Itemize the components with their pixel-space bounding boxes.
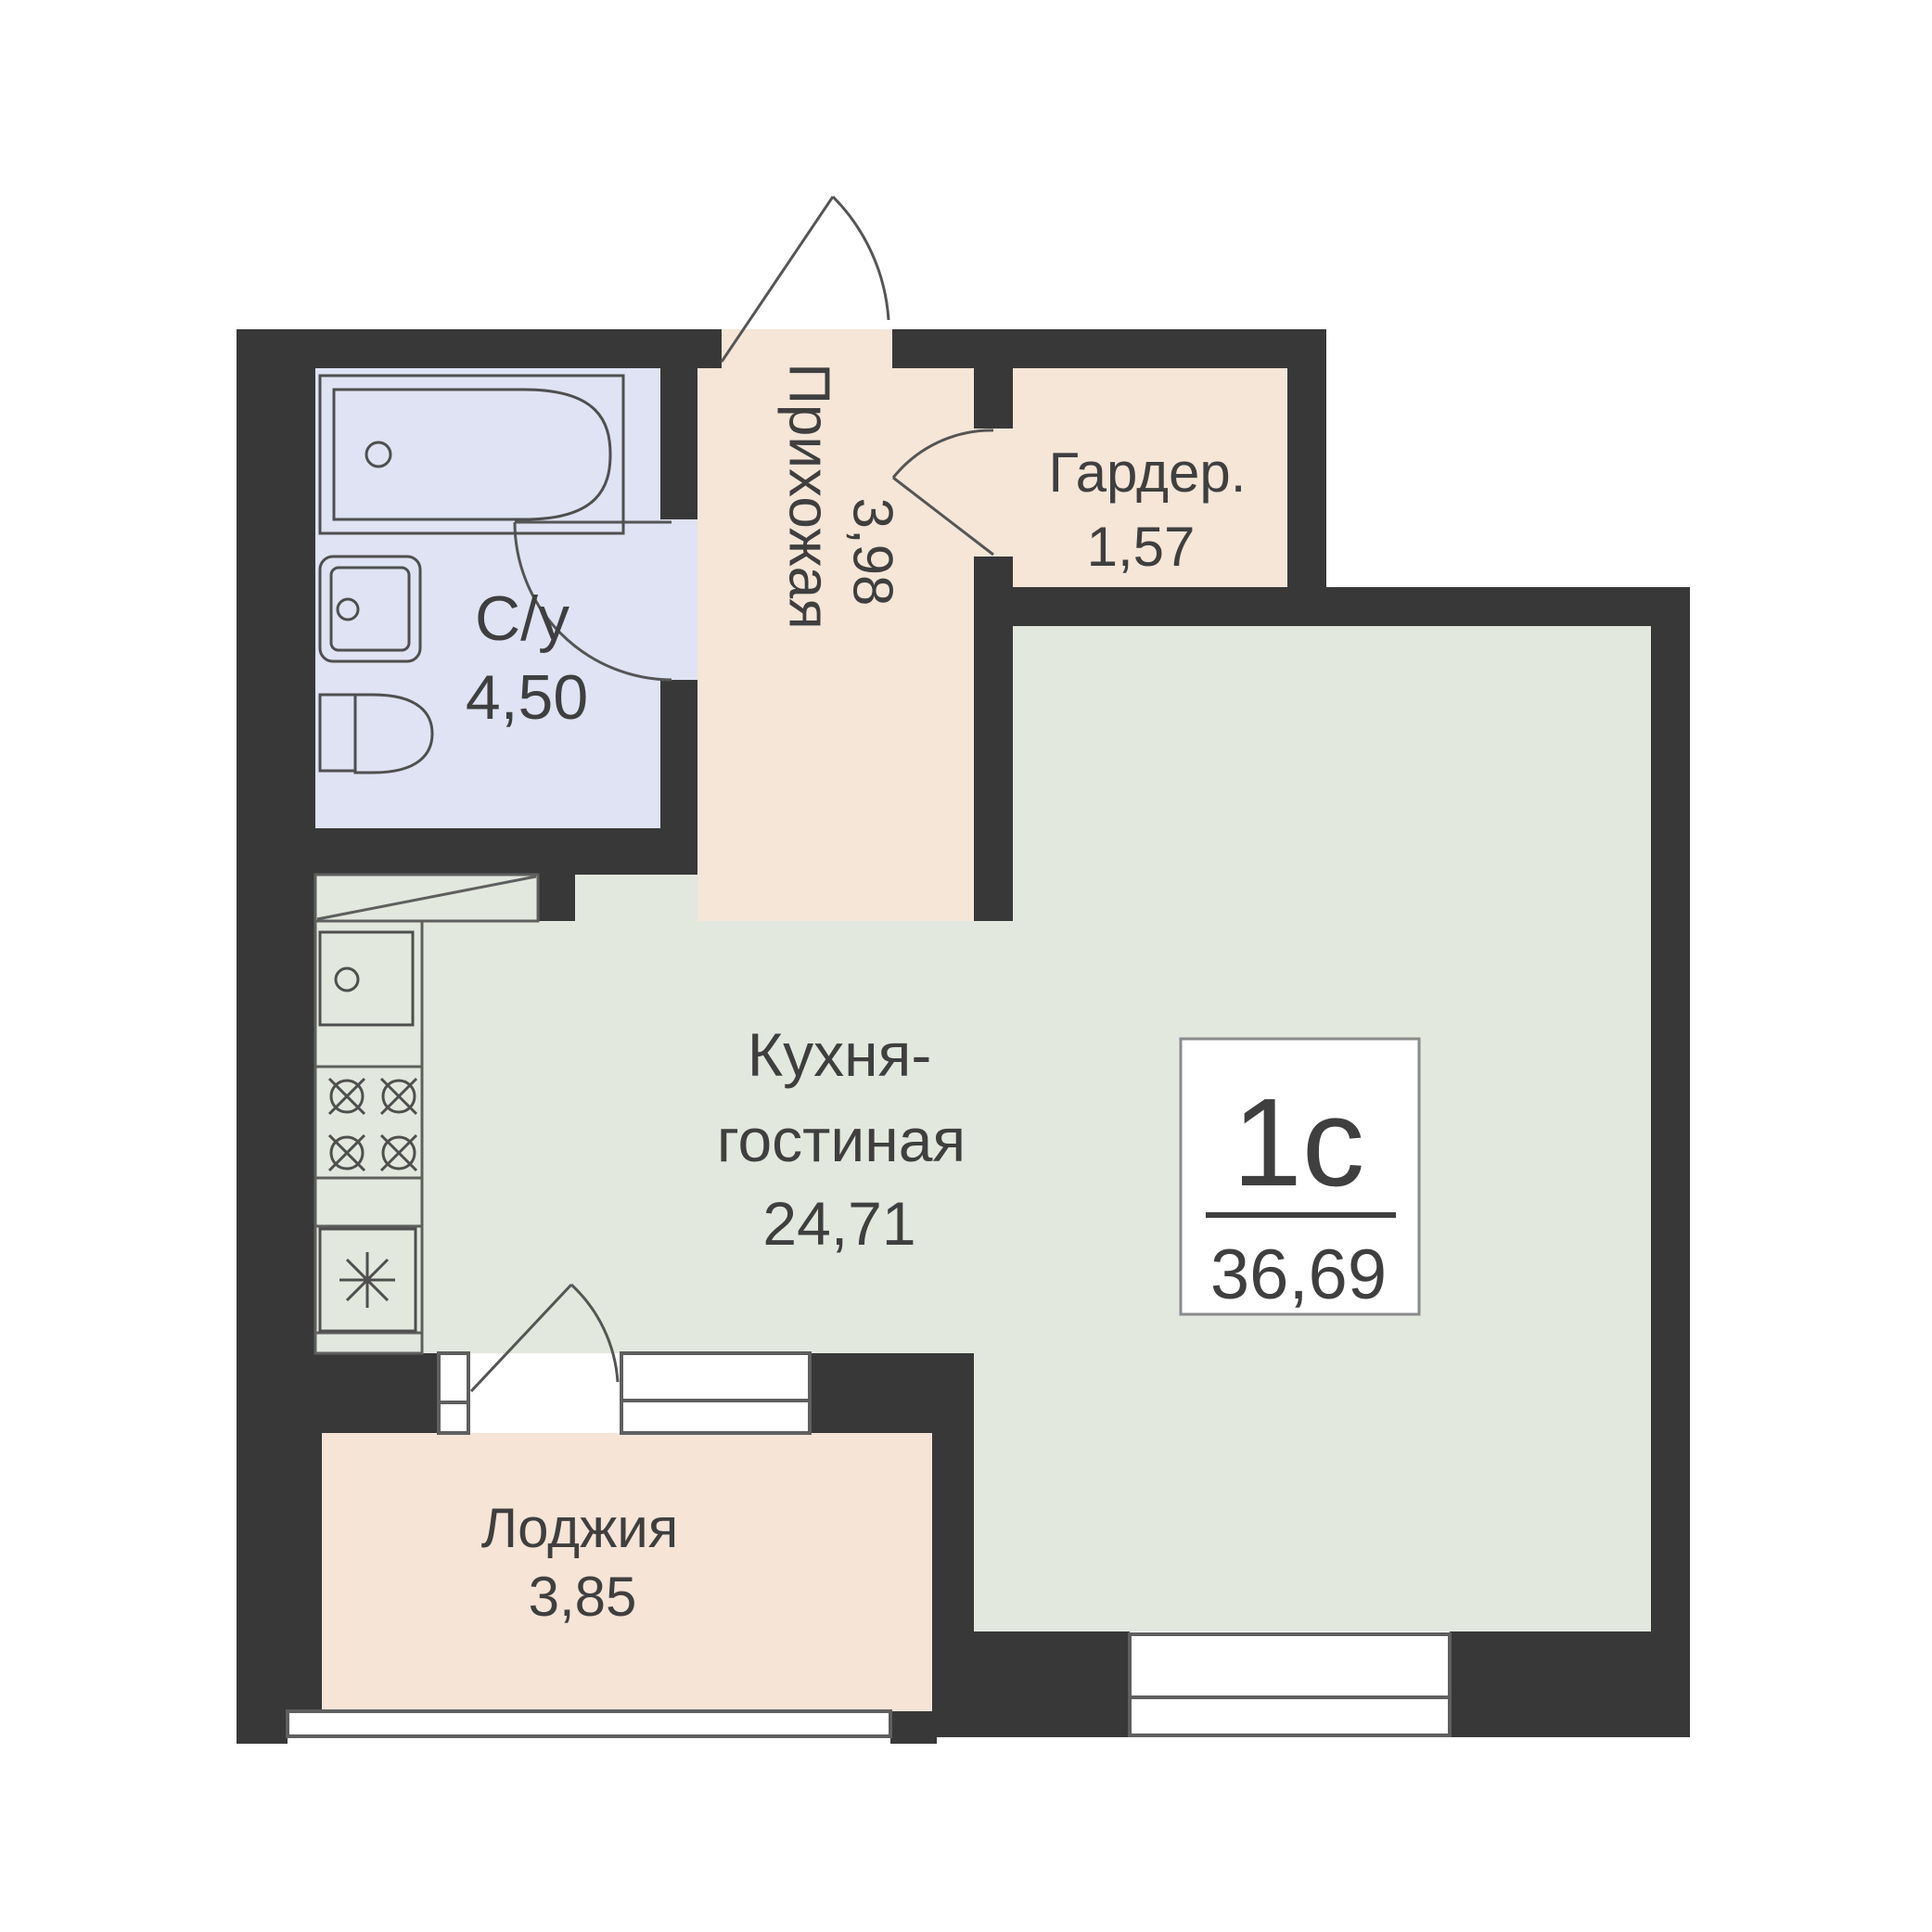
wall-right-outer xyxy=(1651,587,1690,1737)
wall-living-top-right xyxy=(1287,587,1690,626)
unit-type-label: 1с xyxy=(1233,1072,1365,1212)
wall-left-loggia xyxy=(237,1353,322,1711)
wall-loggia-post-right xyxy=(890,1711,937,1744)
unit-badge: 1с 36,69 xyxy=(1181,1039,1419,1314)
wall-wardrobe-left-upper xyxy=(974,368,1013,429)
balcony-window xyxy=(621,1353,810,1433)
hallway-floor xyxy=(697,329,1013,921)
wall-duct-stub xyxy=(538,875,575,921)
loggia-glazing xyxy=(288,1711,890,1736)
wardrobe-label: Гардер. xyxy=(1049,441,1247,504)
wall-bathroom-right-upper xyxy=(660,368,697,519)
wall-bottom-right-of-window xyxy=(1450,1631,1690,1737)
wall-left-outer xyxy=(237,329,315,1353)
wardrobe-area: 1,57 xyxy=(1087,516,1196,578)
wall-balcony-band-left xyxy=(322,1353,439,1433)
wall-top-right xyxy=(892,329,1326,368)
floor-plan-canvas: С/у 4,50 Прихожая 3,98 Гардер. 1,57 Кухн… xyxy=(0,0,1932,1932)
kitchen-living-label-line2: гостиная xyxy=(717,1106,966,1174)
wall-wardrobe-right xyxy=(1287,329,1326,626)
wall-loggia-right xyxy=(932,1433,974,1631)
duct-shaft xyxy=(315,875,538,921)
loggia-label: Лоджия xyxy=(481,1497,679,1559)
hallway-area: 3,98 xyxy=(842,498,904,607)
kitchen-living-area: 24,71 xyxy=(762,1189,915,1258)
wall-bathroom-bottom xyxy=(315,828,697,875)
hallway-label: Прихожая xyxy=(777,363,841,629)
balcony-door-frame xyxy=(439,1353,468,1433)
wall-bathroom-right-lower xyxy=(660,680,697,828)
wall-bottom-left-of-window xyxy=(932,1631,1130,1737)
bathroom-label: С/у xyxy=(475,583,569,654)
wall-loggia-post-left xyxy=(237,1711,288,1744)
unit-area-value: 36,69 xyxy=(1210,1235,1387,1314)
wall-wardrobe-bottom xyxy=(974,587,1326,626)
entrance-door-arc xyxy=(833,197,889,320)
loggia-area: 3,85 xyxy=(529,1566,637,1628)
bathroom-area: 4,50 xyxy=(466,662,588,733)
floor-plan-page: С/у 4,50 Прихожая 3,98 Гардер. 1,57 Кухн… xyxy=(0,0,1932,1932)
fridge-snowflake-icon xyxy=(339,1252,395,1308)
kitchen-living-label-line1: Кухня- xyxy=(748,1020,932,1089)
wall-balcony-band-right xyxy=(810,1353,974,1433)
living-room-window xyxy=(1130,1634,1450,1735)
